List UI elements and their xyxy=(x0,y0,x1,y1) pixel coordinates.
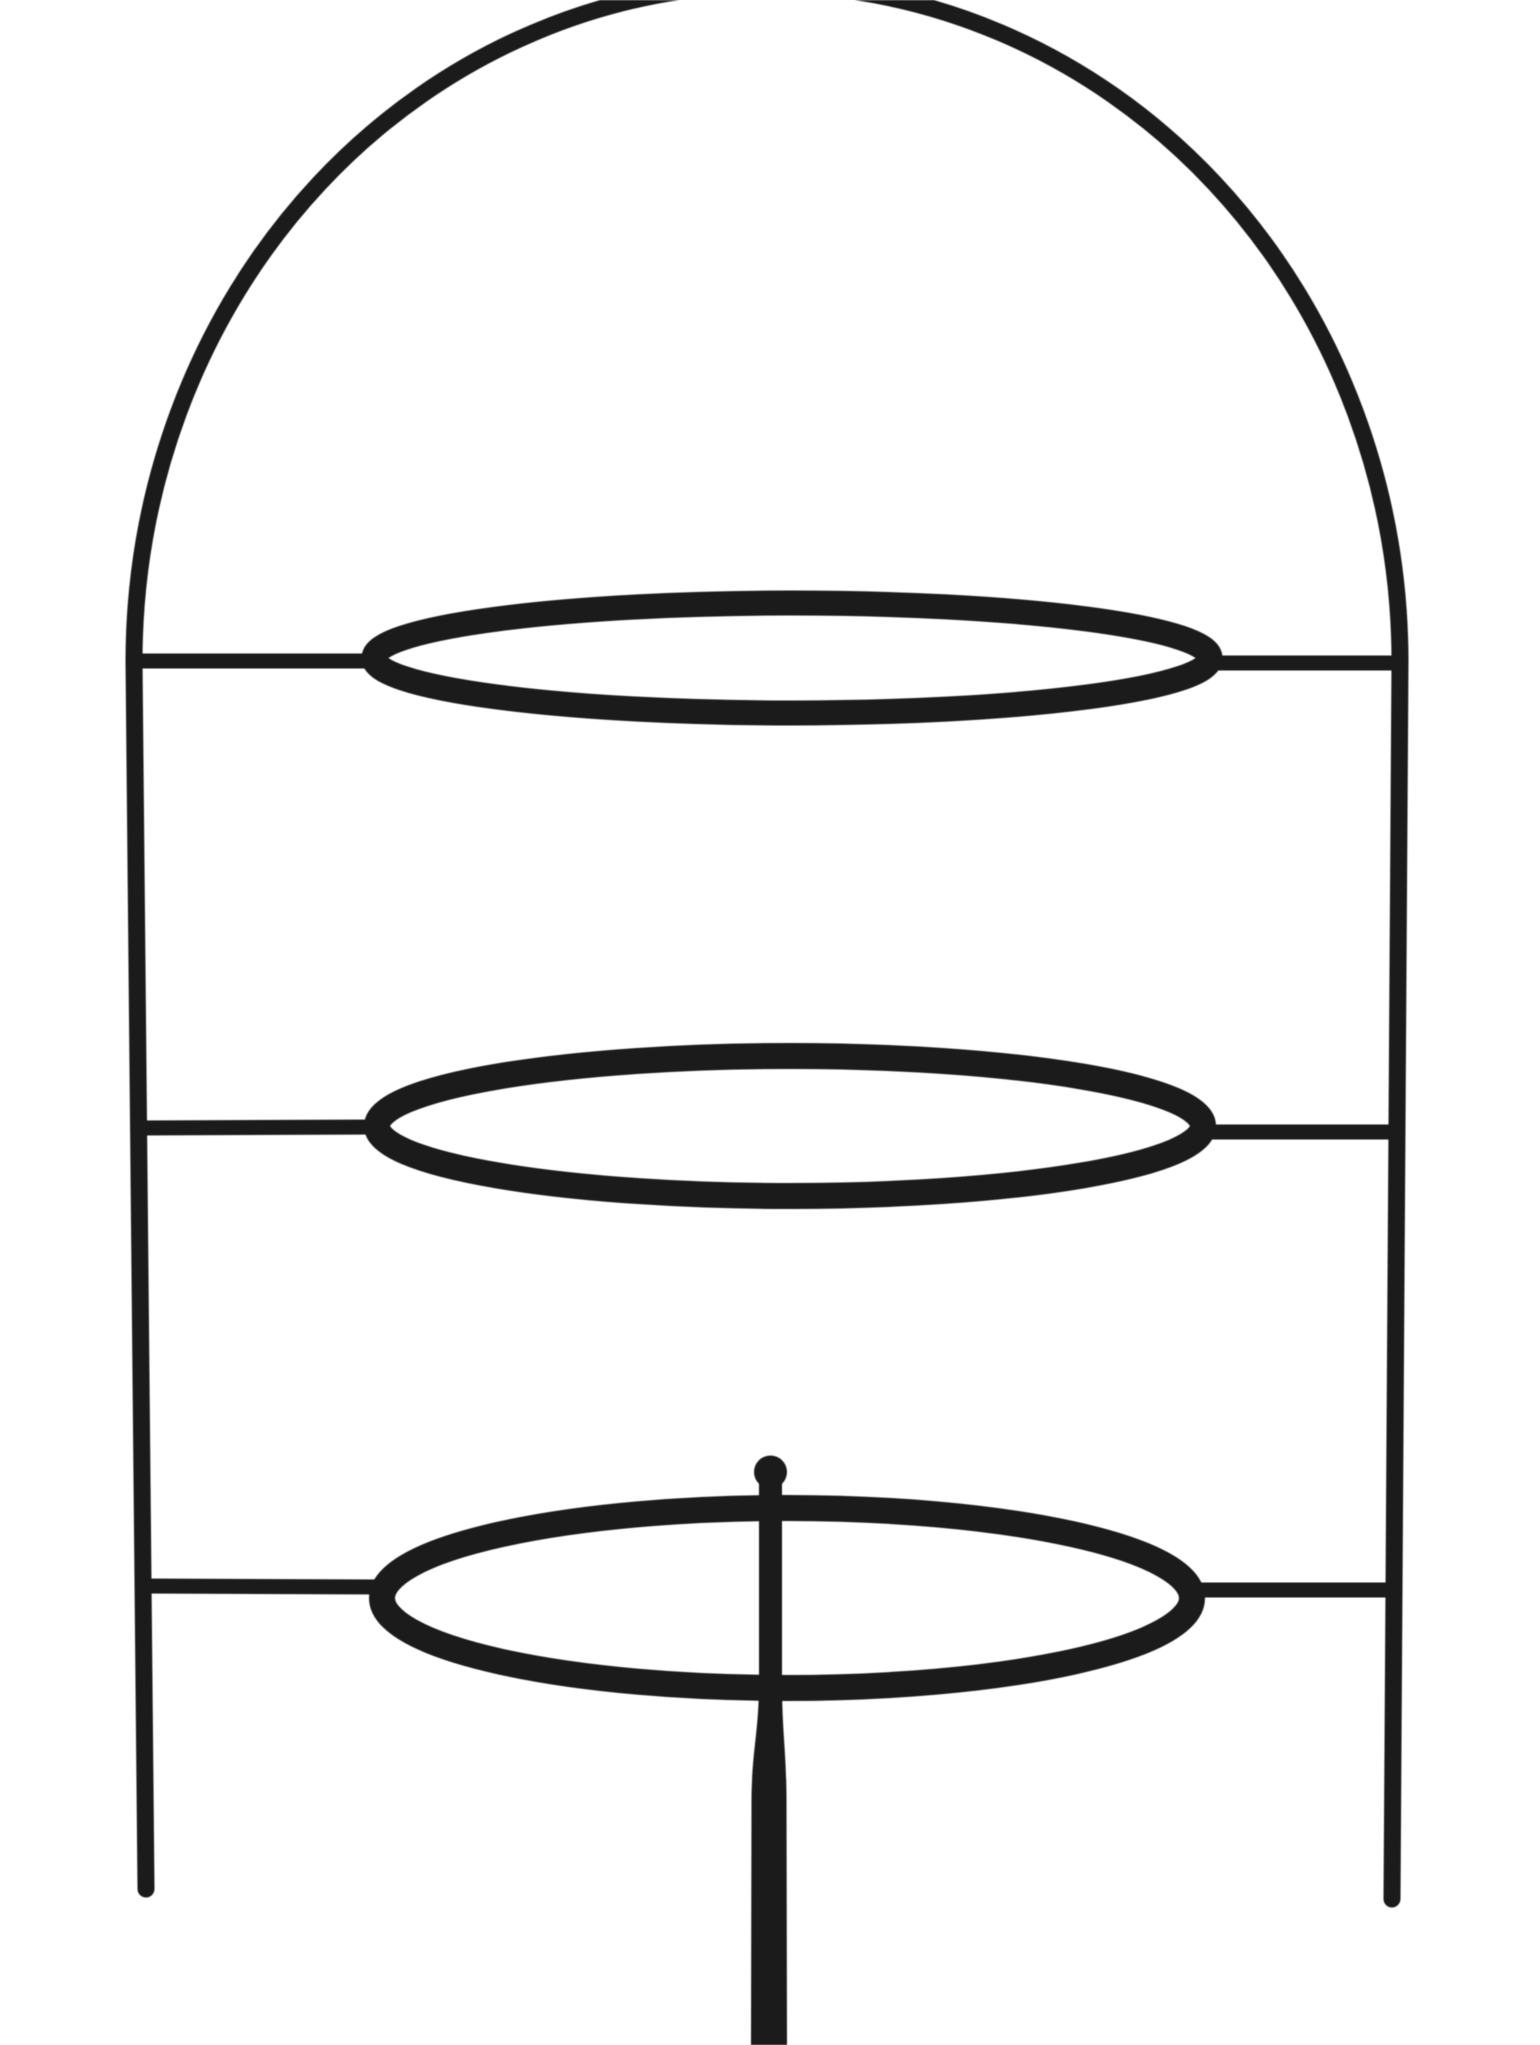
tier3-plate-ring xyxy=(382,1508,1192,1688)
center-rod xyxy=(751,1470,787,2045)
right-leg xyxy=(1392,660,1400,1899)
tier1-plate-ring xyxy=(374,603,1210,713)
tier2-left-support-bar xyxy=(137,1127,387,1128)
tier2-plate-ring xyxy=(377,1056,1203,1196)
plate-stand-illustration xyxy=(0,0,1540,2045)
tier3-left-support-bar xyxy=(142,1586,392,1587)
arch-frame xyxy=(134,0,1400,662)
center-rod-cap xyxy=(754,1456,787,1489)
left-leg xyxy=(134,660,146,1889)
product-photo xyxy=(0,0,1540,2045)
